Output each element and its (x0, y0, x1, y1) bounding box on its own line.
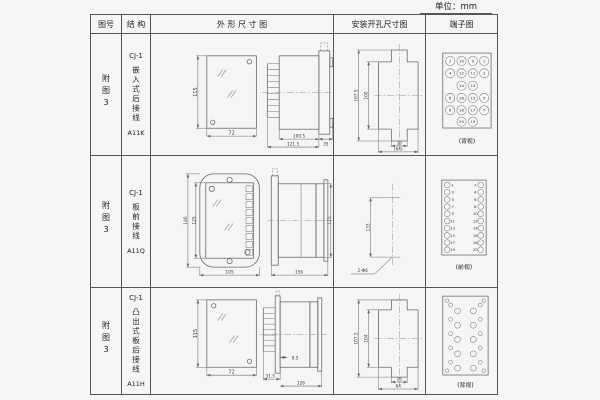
terminal-number: 6 (474, 198, 477, 202)
terminal-caption: (前视) (455, 263, 471, 271)
terminal-number: 3 (451, 191, 454, 195)
dim-64: (64) (393, 146, 402, 152)
model-label: CJ-1 (129, 294, 143, 302)
terminal-number: 8 (474, 205, 477, 209)
dim-105: 105 (225, 269, 233, 275)
model-code: A11H (127, 380, 145, 388)
terminal-number: 14 (459, 84, 464, 88)
dim-31_5: 31.5 (265, 373, 275, 379)
terminal-caption: (背视) (458, 137, 474, 145)
outline-cell: 140 125 105 (151, 156, 334, 288)
model-code: A11K (128, 129, 145, 137)
dim-16: 16 (396, 140, 402, 146)
terminal-number: 19 (470, 120, 475, 124)
header-fig: 图号 (91, 15, 122, 34)
model-label: CJ-1 (129, 52, 143, 60)
dim-115: 115 (193, 87, 199, 96)
terminal-number: 5 (482, 96, 485, 100)
table-row-a11k: 附图3 CJ-1 嵌入式后接线 A11K (91, 34, 498, 156)
terminal-number: 12 (472, 219, 477, 223)
outline-drawing-a11h: 115 72 9.5 (152, 288, 333, 394)
terminal-number: 13 (470, 84, 475, 88)
fig-no-label: 附图3 (101, 74, 112, 111)
terminal-number: 9 (451, 212, 454, 216)
dim-64: 64 (395, 383, 401, 389)
terminal-number: 18 (459, 109, 464, 113)
terminal-cell: 2 10 9 1 4 12 11 3 14 13 6 16 15 5 (426, 34, 498, 156)
terminal-cell: (背视) (426, 288, 498, 395)
terminal-diagram-a11q: 1 3 5 7 9 11 13 15 17 19 2 4 6 8 10 12 1 (427, 156, 497, 287)
terminal-number: 12 (459, 72, 464, 76)
terminal-diagram-a11h: (背视) (427, 288, 497, 394)
header-struct: 结 构 (122, 15, 151, 34)
terminal-number: 11 (450, 219, 455, 223)
dim-125: 125 (191, 216, 197, 224)
dim-156: 156 (295, 269, 303, 275)
terminal-number: 1 (482, 59, 485, 63)
fig-no-label: 附图3 (101, 201, 112, 238)
terminal-number: 9 (471, 59, 474, 63)
terminal-number: 4 (474, 191, 477, 195)
dim-115: 115 (193, 329, 199, 338)
terminal-number: 7 (482, 109, 485, 113)
dim-140: 140 (182, 216, 188, 224)
fig-no-cell: 附图3 (91, 156, 122, 288)
terminal-number: 2 (474, 183, 476, 187)
terminal-number: 10 (472, 212, 477, 216)
terminal-diagram-a11k: 2 10 9 1 4 12 11 3 14 13 6 16 15 5 (427, 34, 497, 155)
dim-107_5: 107.5 (353, 332, 359, 344)
dim-104: 104 (363, 334, 369, 342)
table-row-a11q: 附图3 CJ-1 板前接线 A11Q (91, 156, 498, 288)
model-code: A11Q (127, 247, 145, 255)
unit-label: 单位：mm (420, 1, 492, 14)
terminal-number: 10 (459, 59, 464, 63)
dim-133: 133 (365, 223, 371, 231)
dim-107_5: 107.5 (353, 89, 359, 101)
struct-desc: 板前接线 (131, 203, 142, 241)
struct-cell: CJ-1 凸出式板后接线 A11H (122, 288, 151, 395)
mount-drawing-a11q: 133 2-Φ6 (335, 156, 425, 287)
terminal-number: 16 (459, 96, 464, 100)
header-outline: 外 形 尺 寸 图 (151, 15, 334, 34)
mount-cell: 107.5 104 16 64 (334, 288, 426, 395)
dim-100_5: 100.5 (292, 133, 304, 139)
header-mount: 安装开孔尺寸图 (334, 15, 426, 34)
dim-9_5: 9.5 (291, 355, 298, 361)
terminal-number: 13 (450, 227, 455, 231)
dim-35: 35 (323, 142, 329, 148)
terminal-number: 8 (448, 109, 451, 113)
terminal-number: 4 (448, 72, 451, 76)
terminal-number: 3 (482, 72, 485, 76)
outline-drawing-a11k: 115 72 100.5 (152, 34, 333, 155)
terminal-number: 20 (472, 248, 477, 252)
outline-drawing-a11q: 140 125 105 (152, 156, 333, 287)
terminal-number: 6 (448, 96, 451, 100)
terminal-number: 15 (450, 234, 455, 238)
mount-cell: 133 2-Φ6 (334, 156, 426, 288)
hole-label: 2-Φ6 (357, 268, 368, 274)
struct-desc: 凸出式板后接线 (131, 308, 142, 375)
terminal-number: 20 (459, 120, 464, 124)
dim-72: 72 (228, 130, 234, 136)
mount-drawing-a11k: 107.5 100 16 (64) (335, 34, 425, 155)
terminal-number: 2 (448, 59, 450, 63)
dim-121_5: 121.5 (286, 141, 298, 147)
table-row-a11h: 附图3 CJ-1 凸出式板后接线 A11H 115 (91, 288, 498, 395)
fig-no-cell: 附图3 (91, 288, 122, 395)
header-row: 图号 结 构 外 形 尺 寸 图 安装开孔尺寸图 端子图 (91, 15, 498, 34)
outline-cell: 115 72 9.5 (151, 288, 334, 395)
header-terminal: 端子图 (426, 15, 498, 34)
terminal-number: 7 (451, 205, 454, 209)
mount-drawing-a11h: 107.5 104 16 64 (335, 288, 425, 394)
dim-16: 16 (396, 377, 402, 383)
terminal-number: 18 (472, 241, 477, 245)
outline-cell: 115 72 100.5 (151, 34, 334, 156)
terminal-number: 16 (472, 234, 477, 238)
struct-cell: CJ-1 嵌入式后接线 A11K (122, 34, 151, 156)
terminal-number: 1 (451, 183, 454, 187)
dim-126: 126 (296, 380, 304, 386)
struct-desc: 嵌入式后接线 (131, 66, 142, 123)
spec-table: 图号 结 构 外 形 尺 寸 图 安装开孔尺寸图 端子图 附图3 CJ-1 嵌入… (90, 14, 498, 395)
terminal-cell: 1 3 5 7 9 11 13 15 17 19 2 4 6 8 10 12 1 (426, 156, 498, 288)
dim-100: 100 (363, 91, 369, 99)
dim-115-side: 115 (326, 216, 332, 224)
terminal-number: 11 (470, 72, 475, 76)
fig-no-cell: 附图3 (91, 34, 122, 156)
terminal-number: 14 (472, 227, 477, 231)
terminal-number: 5 (451, 198, 454, 202)
mount-cell: 107.5 100 16 (64) (334, 34, 426, 156)
terminal-caption: (背视) (457, 381, 473, 389)
struct-cell: CJ-1 板前接线 A11Q (122, 156, 151, 288)
terminal-number: 19 (450, 248, 455, 252)
dim-72: 72 (228, 369, 234, 375)
terminal-number: 17 (470, 109, 475, 113)
document-page: 单位：mm 图号 结 构 外 形 尺 寸 图 安装开孔尺寸图 端子图 附图3 C… (0, 0, 600, 400)
fig-no-label: 附图3 (101, 321, 112, 358)
model-label: CJ-1 (129, 189, 143, 197)
terminal-number: 15 (470, 96, 475, 100)
terminal-number: 17 (450, 241, 455, 245)
